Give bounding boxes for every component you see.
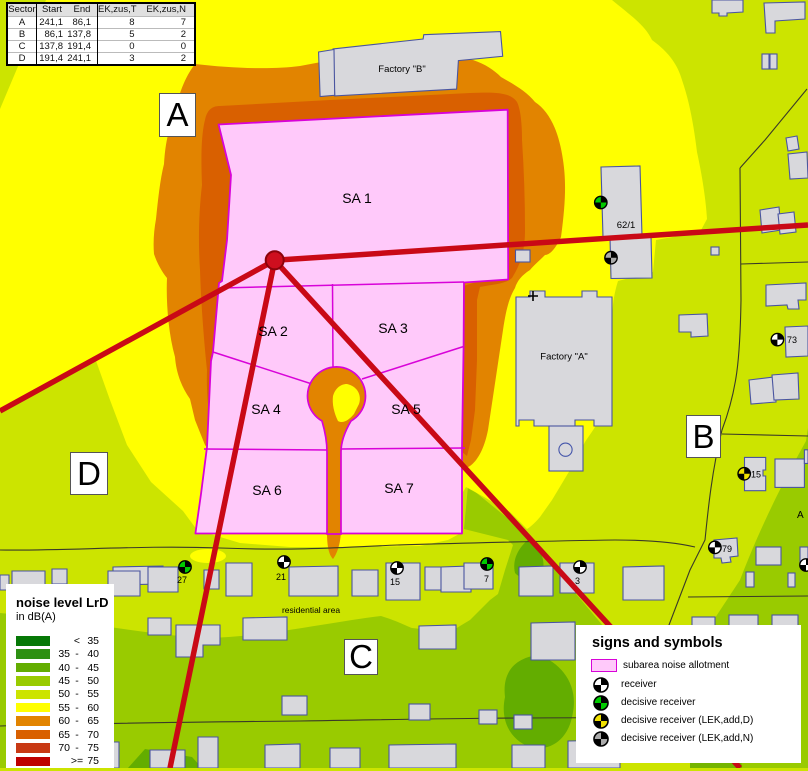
svg-text:27: 27 (177, 575, 187, 585)
svg-text:SA 6: SA 6 (252, 482, 282, 498)
svg-text:73: 73 (787, 335, 797, 345)
svg-text:SA 7: SA 7 (384, 480, 414, 496)
svg-text:15: 15 (390, 577, 400, 587)
svg-text:SA 4: SA 4 (251, 401, 281, 417)
svg-text:Factory "A": Factory "A" (540, 352, 587, 363)
svg-text:SA 3: SA 3 (378, 320, 408, 336)
svg-text:Factory "B": Factory "B" (378, 64, 425, 75)
svg-text:residential area: residential area (282, 605, 340, 615)
svg-text:7: 7 (484, 574, 489, 584)
svg-text:15: 15 (751, 470, 761, 480)
svg-text:SA 5: SA 5 (391, 401, 421, 417)
svg-text:SA 2: SA 2 (258, 323, 288, 339)
svg-text:21: 21 (276, 572, 286, 582)
svg-text:79: 79 (722, 544, 732, 554)
svg-text:A: A (797, 510, 804, 521)
svg-text:3: 3 (575, 576, 580, 586)
svg-text:62/1: 62/1 (617, 220, 636, 231)
svg-text:SA 1: SA 1 (342, 190, 372, 206)
